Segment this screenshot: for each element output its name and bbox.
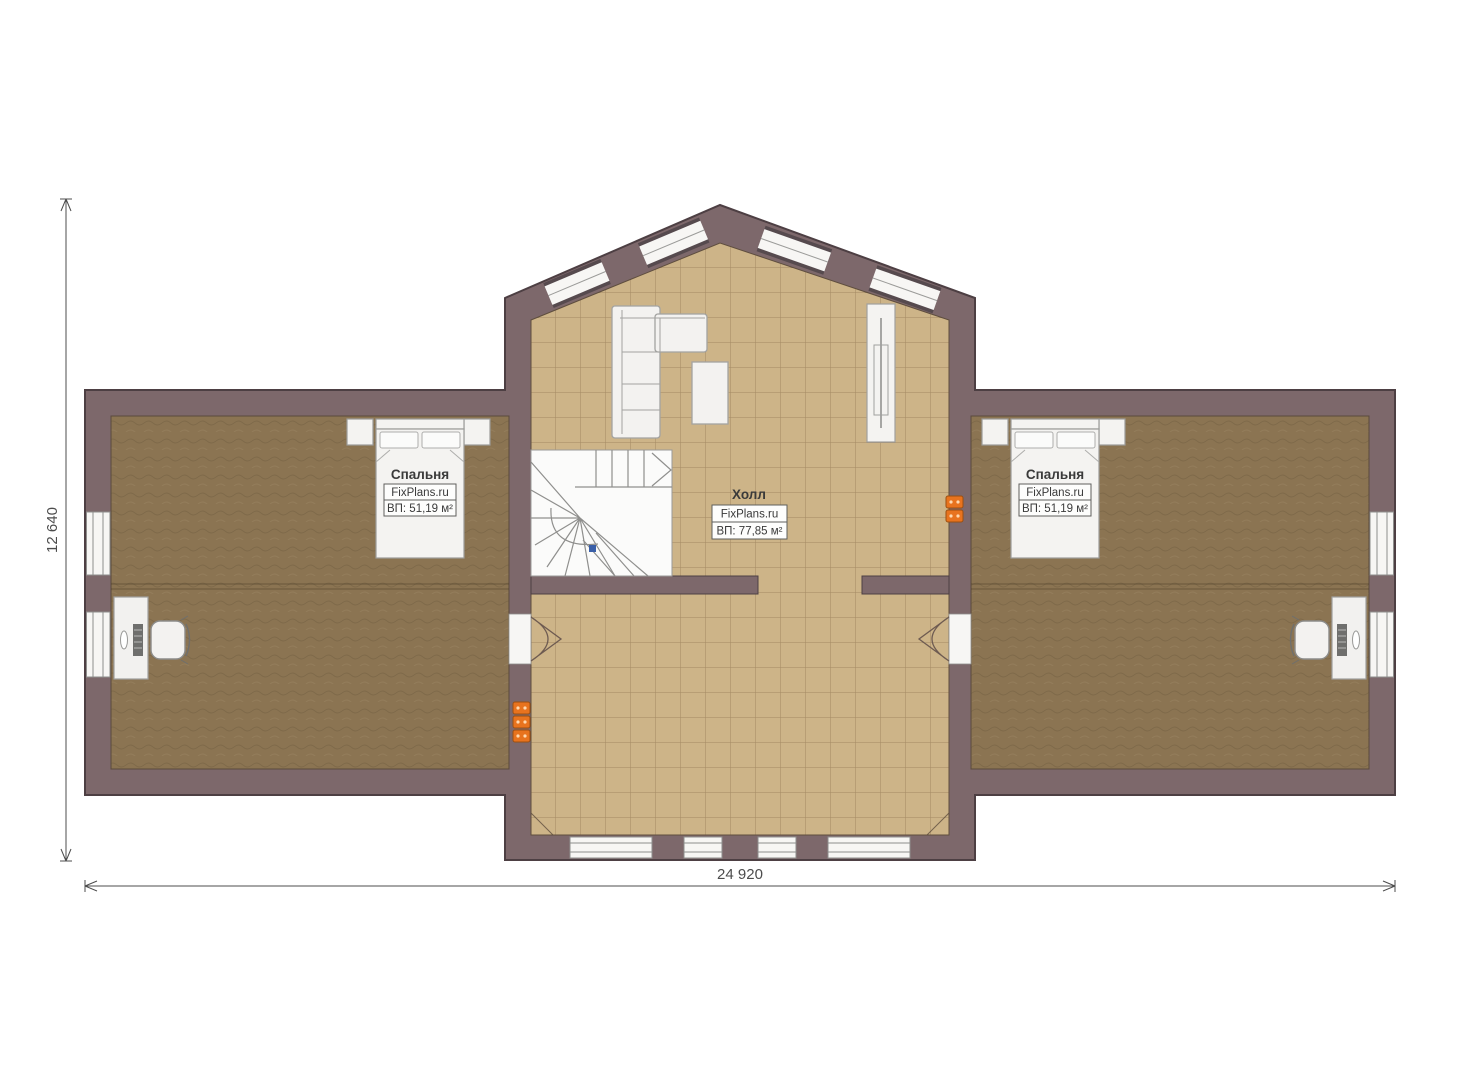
dimension-height-label: 12 640: [44, 507, 61, 553]
pillow: [422, 432, 460, 448]
power-outlet-icon: [513, 730, 530, 742]
room-label-bedroom-left: Спальня: [391, 467, 449, 482]
nightstand: [982, 419, 1008, 445]
laptop: [133, 624, 143, 656]
brand-label: FixPlans.ru: [391, 487, 449, 499]
window: [1370, 612, 1394, 677]
area-label: ВП: 77,85 м²: [716, 526, 782, 538]
desk-item: [1353, 631, 1360, 649]
floor-plan-drawing: Спальня FixPlans.ru ВП: 51,19 м² Спальня…: [0, 0, 1474, 1080]
area-label: ВП: 51,19 м²: [387, 503, 453, 515]
window: [87, 512, 111, 575]
power-outlet-icon: [513, 702, 530, 714]
stair-marker: [589, 545, 596, 552]
nightstand: [1099, 419, 1125, 445]
pillow: [380, 432, 418, 448]
stairs: [531, 450, 672, 576]
laptop: [1337, 624, 1347, 656]
brand-label: FixPlans.ru: [721, 509, 779, 521]
dimension-height: [60, 199, 72, 861]
dimension-width-label: 24 920: [717, 866, 763, 883]
desk-item: [121, 631, 128, 649]
pillow: [1015, 432, 1053, 448]
nightstand: [347, 419, 373, 445]
power-outlet-icon: [513, 716, 530, 728]
power-outlet-icon: [946, 510, 963, 522]
window: [1370, 512, 1394, 575]
brand-label: FixPlans.ru: [1026, 487, 1084, 499]
pillow: [1057, 432, 1095, 448]
room-label-bedroom-right: Спальня: [1026, 467, 1084, 482]
nightstand: [464, 419, 490, 445]
cabinet-tall: [867, 304, 895, 442]
window: [87, 612, 111, 677]
hall-divider-wall: [531, 576, 949, 594]
area-label: ВП: 51,19 м²: [1022, 503, 1088, 515]
room-label-hall: Холл: [732, 487, 766, 502]
outlet-group-left: [513, 702, 530, 742]
coffee-table: [692, 362, 728, 424]
power-outlet-icon: [946, 496, 963, 508]
floor-plan-page: Спальня FixPlans.ru ВП: 51,19 м² Спальня…: [0, 0, 1474, 1080]
